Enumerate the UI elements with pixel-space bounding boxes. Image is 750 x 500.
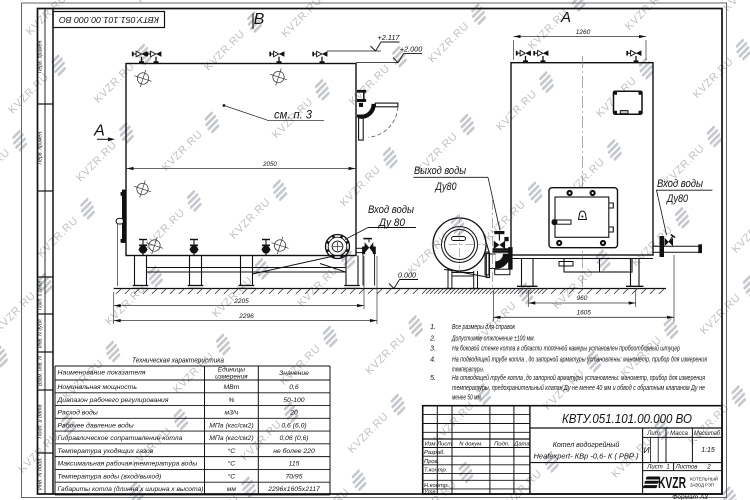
svg-text:Взам. инв. N: Взам. инв. N <box>38 356 44 386</box>
svg-text:2: 2 <box>706 465 711 471</box>
svg-text:0,6: 0,6 <box>289 384 299 391</box>
svg-text:70/95: 70/95 <box>285 473 302 480</box>
svg-text:Разраб.: Разраб. <box>424 450 445 456</box>
svg-text:Дата: Дата <box>513 441 530 447</box>
svg-text:КВТУ.051.101.00.000 ВО: КВТУ.051.101.00.000 ВО <box>58 15 159 24</box>
svg-text:МПа (кгс/см2): МПа (кгс/см2) <box>209 435 253 442</box>
svg-text:Формат А3: Формат А3 <box>672 494 708 500</box>
svg-text:Лит.: Лит. <box>646 431 661 437</box>
svg-text:Подп. и дата: Подп. и дата <box>38 281 44 310</box>
svg-text:Heatexpert- КВр -0,6- К ( РВР: Heatexpert- КВр -0,6- К ( РВР ) <box>534 454 639 461</box>
svg-text:°С: °С <box>228 472 236 480</box>
svg-text:°С: °С <box>228 460 236 468</box>
svg-text:измерения: измерения <box>215 373 248 380</box>
svg-text:Допустимое отклонение ±100 мм: Допустимое отклонение ±100 мм. <box>451 336 535 343</box>
svg-text:2050: 2050 <box>262 161 277 168</box>
svg-text:температуры, предохранительный: температуры, предохранительный клапан Ду… <box>452 384 705 392</box>
svg-text:KVZR: KVZR <box>658 475 686 492</box>
svg-text:Масса: Масса <box>670 431 688 437</box>
svg-text:Пров.: Пров. <box>424 459 439 465</box>
svg-text:Перв. примен.: Перв. примен. <box>38 131 44 165</box>
svg-text:см. п. 3: см. п. 3 <box>274 110 313 122</box>
svg-text:И: И <box>643 445 650 455</box>
svg-text:Т.контр.: Т.контр. <box>424 467 447 473</box>
svg-text:1.: 1. <box>430 324 436 331</box>
svg-text:мм: мм <box>227 486 237 493</box>
svg-text:Изм: Изм <box>425 441 436 447</box>
svg-text:Подп. и дата: Подп. и дата <box>38 404 44 438</box>
svg-text:Температура воды (вход/выход): Температура воды (вход/выход) <box>58 472 162 480</box>
svg-text:%: % <box>228 397 234 404</box>
svg-text:0,06 (0,6): 0,06 (0,6) <box>279 435 308 442</box>
svg-text:1:15: 1:15 <box>701 447 715 454</box>
svg-text:не более 220: не более 220 <box>273 447 315 455</box>
svg-text:Диапазон рабочего регулировани: Диапазон рабочего регулирования <box>57 396 169 404</box>
svg-text:N докум.: N докум. <box>459 441 482 447</box>
svg-text:Перв. примен.: Перв. примен. <box>38 39 44 73</box>
svg-text:+2.000: +2.000 <box>400 45 423 54</box>
svg-text:4.: 4. <box>430 357 436 364</box>
svg-text:Инв. N подл.: Инв. N подл. <box>38 457 44 490</box>
svg-text:Наименование показателя: Наименование показателя <box>58 370 146 377</box>
svg-text:960: 960 <box>577 295 588 302</box>
svg-text:20: 20 <box>289 410 298 417</box>
svg-text:Вход воды: Вход воды <box>368 204 414 216</box>
svg-text:А: А <box>93 123 105 140</box>
svg-text:ЗАВОД РЭП: ЗАВОД РЭП <box>690 483 714 489</box>
svg-text:Ду80: Ду80 <box>665 193 688 205</box>
svg-text:МПа (кгс/см2): МПа (кгс/см2) <box>209 422 253 429</box>
svg-text:Значение: Значение <box>279 370 309 377</box>
svg-text:+2.117: +2.117 <box>378 33 401 42</box>
svg-text:2296: 2296 <box>238 313 254 320</box>
svg-text:Ду80: Ду80 <box>434 181 457 193</box>
svg-text:Лист: Лист <box>646 465 662 471</box>
svg-text:115: 115 <box>289 461 300 468</box>
svg-text:Масштаб: Масштаб <box>694 431 721 437</box>
svg-text:Техническая характеристика: Техническая характеристика <box>132 356 224 365</box>
svg-text:2296х1605х2117: 2296х1605х2117 <box>267 486 320 493</box>
svg-text:Выход воды: Выход воды <box>414 165 466 177</box>
svg-text:Листов: Листов <box>675 465 698 471</box>
svg-text:1605: 1605 <box>576 310 591 317</box>
svg-text:На боковой стенке котла в обла: На боковой стенке котла в области топочн… <box>452 345 680 353</box>
svg-text:Утв.: Утв. <box>423 489 437 495</box>
svg-text:КВТУ.051.101.00.000 ВО: КВТУ.051.101.00.000 ВО <box>562 411 692 426</box>
svg-text:Рабочее давление воды: Рабочее давление воды <box>58 421 134 429</box>
svg-text:менее 50 мм.: менее 50 мм. <box>452 395 482 402</box>
svg-text:2.: 2. <box>429 336 436 343</box>
svg-text:Подп.: Подп. <box>494 441 509 447</box>
svg-text:Все размеры для справок: Все размеры для справок <box>452 323 516 331</box>
svg-text:0,6 (6,0): 0,6 (6,0) <box>281 422 306 429</box>
svg-text:3.: 3. <box>430 346 436 353</box>
svg-text:температуры.: температуры. <box>452 367 484 374</box>
svg-text:Расход воды: Расход воды <box>58 409 98 417</box>
svg-text:1: 1 <box>666 465 669 471</box>
svg-text:На подводящей трубе котла ,: На подводящей трубе котла , до запорной … <box>452 356 707 364</box>
svg-text:Единицы: Единицы <box>218 366 245 374</box>
svg-text:В: В <box>254 11 265 28</box>
svg-text:°С: °С <box>228 447 236 455</box>
svg-text:На отводящей трубе котла ,до з: На отводящей трубе котла ,до запорной ар… <box>452 374 705 382</box>
svg-text:м3/ч: м3/ч <box>224 410 238 417</box>
svg-text:5.: 5. <box>430 375 436 382</box>
svg-text:Н.контр.: Н.контр. <box>424 483 449 489</box>
svg-text:1260: 1260 <box>576 29 591 36</box>
svg-text:Инв. N дубл.: Инв. N дубл. <box>38 318 44 348</box>
svg-text:МВт: МВт <box>223 384 239 391</box>
svg-text:Вход воды: Вход воды <box>657 178 703 190</box>
svg-text:Котел водогрейный: Котел водогрейный <box>553 441 620 449</box>
svg-text:А: А <box>560 9 571 26</box>
svg-text:0.000: 0.000 <box>398 271 416 280</box>
svg-text:Максимальная рабочая температу: Максимальная рабочая температура воды <box>58 460 198 468</box>
svg-text:Лист: Лист <box>436 441 452 447</box>
svg-text:Температура уходящих газов: Температура уходящих газов <box>58 447 154 455</box>
svg-text:50-100: 50-100 <box>283 397 304 404</box>
svg-text:2205: 2205 <box>233 298 249 305</box>
svg-text:Номинальная мощность: Номинальная мощность <box>58 384 138 391</box>
svg-text:Габариты котла (длинна х ширин: Габариты котла (длинна х ширина х высота… <box>58 485 204 493</box>
svg-text:Гидравлическое сопративление к: Гидравлическое сопративление котла <box>58 434 183 442</box>
